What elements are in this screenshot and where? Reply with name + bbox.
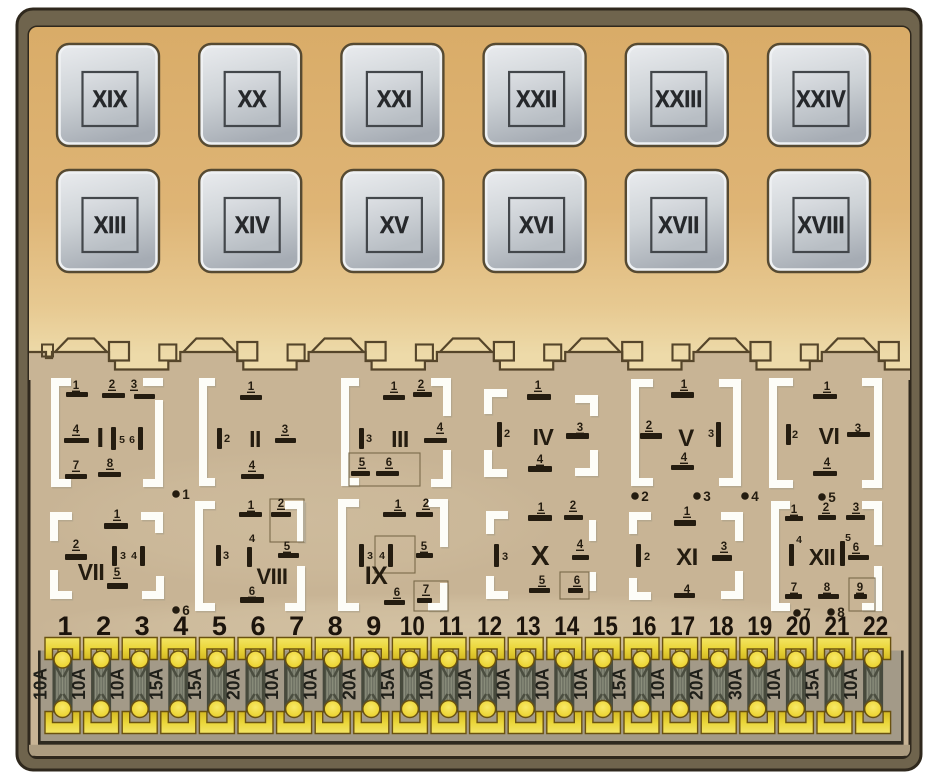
- svg-text:10A: 10A: [531, 668, 552, 700]
- svg-text:3: 3: [120, 550, 126, 562]
- svg-text:5: 5: [421, 541, 428, 553]
- svg-text:1: 1: [248, 500, 255, 512]
- svg-text:3: 3: [853, 502, 859, 514]
- svg-text:3: 3: [131, 379, 137, 391]
- svg-text:20: 20: [786, 611, 811, 641]
- svg-text:7: 7: [423, 584, 429, 596]
- svg-text:8: 8: [107, 458, 114, 470]
- svg-text:XX: XX: [238, 86, 268, 113]
- svg-text:4: 4: [173, 611, 188, 641]
- svg-text:8: 8: [824, 582, 831, 594]
- svg-text:16: 16: [632, 611, 657, 641]
- svg-text:15A: 15A: [145, 668, 166, 700]
- svg-text:10A: 10A: [763, 668, 784, 700]
- svg-text:IV: IV: [533, 424, 555, 450]
- svg-text:3: 3: [135, 611, 150, 641]
- svg-text:6: 6: [853, 542, 859, 554]
- svg-text:1: 1: [681, 379, 688, 391]
- svg-text:1: 1: [395, 499, 402, 511]
- svg-text:4: 4: [537, 454, 544, 466]
- svg-text:I: I: [96, 422, 103, 453]
- svg-text:4: 4: [577, 539, 584, 551]
- svg-text:6: 6: [250, 611, 265, 641]
- svg-text:5: 5: [845, 532, 851, 544]
- svg-text:17: 17: [670, 611, 695, 641]
- svg-text:2: 2: [278, 498, 284, 510]
- svg-text:7: 7: [289, 611, 304, 641]
- svg-text:1: 1: [538, 502, 545, 514]
- svg-text:3: 3: [223, 550, 229, 562]
- svg-text:12: 12: [477, 611, 502, 641]
- svg-text:VIII: VIII: [256, 564, 287, 589]
- svg-text:5: 5: [284, 541, 291, 553]
- svg-text:10A: 10A: [68, 668, 89, 700]
- svg-text:5: 5: [119, 434, 125, 446]
- svg-text:10A: 10A: [261, 668, 282, 700]
- svg-text:15A: 15A: [609, 668, 630, 700]
- svg-text:XXII: XXII: [516, 86, 557, 113]
- svg-text:20A: 20A: [223, 668, 244, 700]
- svg-text:2: 2: [96, 611, 111, 641]
- svg-text:XVII: XVII: [658, 212, 699, 239]
- svg-text:4: 4: [249, 533, 256, 545]
- svg-text:XIX: XIX: [93, 86, 129, 113]
- svg-text:XXI: XXI: [377, 86, 412, 113]
- svg-text:II: II: [249, 426, 261, 452]
- svg-text:9: 9: [857, 582, 863, 594]
- svg-text:VI: VI: [819, 423, 840, 449]
- svg-text:XXIII: XXIII: [655, 86, 702, 113]
- svg-text:3: 3: [721, 541, 727, 553]
- svg-text:11: 11: [439, 611, 464, 641]
- svg-text:15: 15: [593, 611, 618, 641]
- svg-text:15A: 15A: [184, 668, 205, 700]
- svg-text:4: 4: [681, 452, 688, 464]
- svg-text:X: X: [531, 540, 550, 571]
- svg-text:4: 4: [379, 550, 385, 562]
- svg-text:19: 19: [747, 611, 772, 641]
- svg-text:2: 2: [423, 498, 429, 510]
- svg-text:1: 1: [684, 506, 691, 518]
- svg-text:20A: 20A: [338, 668, 359, 700]
- svg-text:XV: XV: [380, 212, 410, 239]
- svg-text:4: 4: [796, 534, 802, 546]
- svg-text:10A: 10A: [454, 668, 475, 700]
- svg-text:1: 1: [182, 487, 190, 502]
- svg-text:3: 3: [577, 422, 583, 434]
- svg-text:1: 1: [535, 380, 542, 392]
- svg-text:13: 13: [516, 611, 541, 641]
- svg-text:1: 1: [114, 509, 121, 521]
- svg-text:1: 1: [824, 381, 831, 393]
- svg-text:7: 7: [73, 460, 79, 472]
- svg-text:VII: VII: [78, 559, 105, 585]
- svg-text:3: 3: [703, 489, 711, 504]
- svg-text:2: 2: [109, 379, 115, 391]
- svg-text:15A: 15A: [377, 668, 398, 700]
- svg-text:4: 4: [73, 424, 80, 436]
- svg-text:10: 10: [400, 611, 425, 641]
- svg-text:5: 5: [539, 575, 546, 587]
- svg-text:30A: 30A: [724, 668, 745, 700]
- svg-text:XXIV: XXIV: [796, 86, 846, 113]
- svg-text:10A: 10A: [840, 668, 861, 700]
- svg-text:3: 3: [367, 550, 373, 562]
- svg-text:10A: 10A: [30, 668, 51, 700]
- svg-text:4: 4: [249, 460, 256, 472]
- svg-text:20A: 20A: [686, 668, 707, 700]
- svg-text:3: 3: [502, 551, 508, 563]
- svg-text:2: 2: [646, 420, 652, 432]
- svg-text:1: 1: [248, 381, 255, 393]
- svg-text:1: 1: [391, 381, 398, 393]
- svg-text:5: 5: [359, 457, 366, 469]
- svg-text:2: 2: [641, 489, 649, 504]
- svg-text:9: 9: [366, 611, 381, 641]
- svg-text:2: 2: [570, 500, 576, 512]
- svg-text:2: 2: [504, 428, 510, 440]
- svg-text:4: 4: [437, 422, 444, 434]
- svg-text:3: 3: [708, 428, 714, 440]
- svg-text:5: 5: [114, 567, 121, 579]
- svg-text:1: 1: [57, 611, 72, 641]
- svg-text:4: 4: [131, 550, 137, 562]
- svg-text:10A: 10A: [493, 668, 514, 700]
- svg-text:6: 6: [249, 586, 255, 598]
- svg-text:2: 2: [823, 502, 829, 514]
- svg-text:XVI: XVI: [519, 212, 554, 239]
- svg-text:1: 1: [791, 504, 798, 516]
- svg-text:5: 5: [212, 611, 227, 641]
- svg-text:3: 3: [366, 433, 372, 445]
- svg-text:15A: 15A: [802, 668, 823, 700]
- svg-text:2: 2: [224, 433, 230, 445]
- svg-text:XII: XII: [809, 544, 836, 570]
- svg-text:XI: XI: [676, 544, 698, 571]
- svg-text:III: III: [391, 426, 409, 452]
- svg-text:7: 7: [791, 582, 797, 594]
- svg-text:4: 4: [824, 457, 831, 469]
- svg-text:10A: 10A: [107, 668, 128, 700]
- svg-text:2: 2: [73, 539, 79, 551]
- svg-text:8: 8: [328, 611, 343, 641]
- svg-text:XIV: XIV: [235, 212, 271, 239]
- svg-text:4: 4: [751, 489, 759, 504]
- svg-text:6: 6: [129, 434, 135, 446]
- svg-text:10A: 10A: [300, 668, 321, 700]
- svg-text:6: 6: [386, 457, 392, 469]
- svg-text:XIII: XIII: [94, 212, 127, 239]
- svg-text:3: 3: [282, 424, 288, 436]
- svg-text:V: V: [678, 425, 694, 452]
- svg-text:18: 18: [709, 611, 734, 641]
- svg-text:2: 2: [418, 379, 424, 391]
- svg-text:10A: 10A: [570, 668, 591, 700]
- svg-text:5: 5: [828, 490, 836, 505]
- svg-text:2: 2: [644, 551, 650, 563]
- svg-text:10A: 10A: [647, 668, 668, 700]
- svg-text:1: 1: [73, 380, 80, 392]
- svg-text:21: 21: [825, 611, 850, 641]
- svg-text:2: 2: [792, 429, 798, 441]
- svg-text:XVIII: XVIII: [797, 212, 844, 239]
- svg-text:22: 22: [863, 611, 888, 641]
- svg-text:6: 6: [394, 587, 400, 599]
- svg-text:14: 14: [554, 611, 579, 641]
- svg-text:6: 6: [574, 575, 580, 587]
- svg-text:10A: 10A: [416, 668, 437, 700]
- svg-text:IX: IX: [365, 562, 388, 590]
